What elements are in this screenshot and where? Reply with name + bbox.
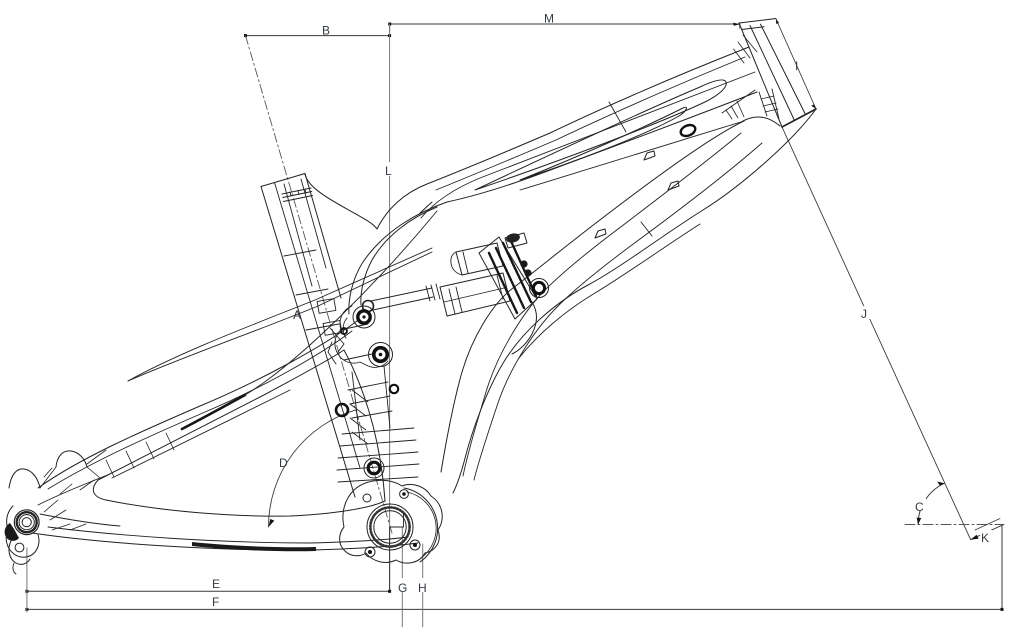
svg-text:F: F — [212, 595, 219, 609]
svg-text:C: C — [915, 500, 924, 514]
svg-text:I: I — [795, 59, 798, 73]
svg-text:L: L — [385, 164, 392, 178]
svg-text:M: M — [544, 12, 554, 26]
svg-text:D: D — [279, 456, 288, 470]
svg-text:G: G — [398, 581, 407, 595]
svg-text:A: A — [293, 308, 301, 322]
svg-text:H: H — [418, 581, 427, 595]
svg-text:E: E — [212, 577, 220, 591]
svg-text:B: B — [322, 24, 330, 38]
svg-text:J: J — [861, 307, 867, 321]
svg-text:K: K — [981, 531, 989, 545]
